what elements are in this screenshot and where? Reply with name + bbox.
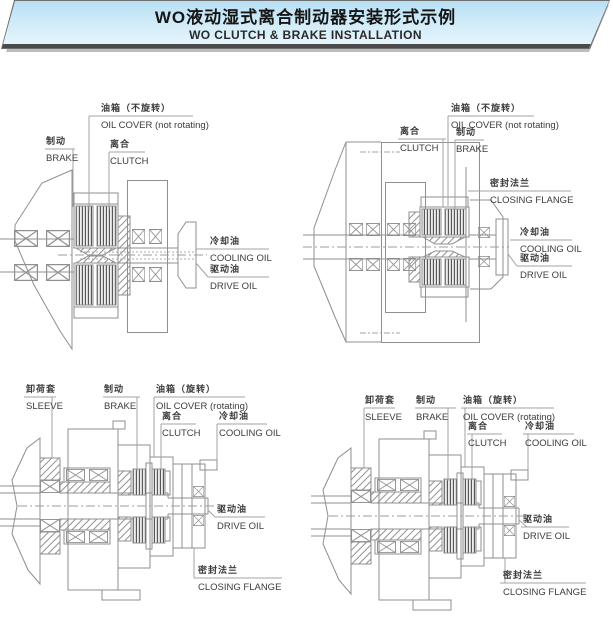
fig2-label-drive-oil: 驱动油 DRIVE OIL: [520, 253, 567, 281]
piston-bottom: [409, 257, 420, 282]
fig2-label-clutch: 离合 CLUTCH: [400, 126, 439, 154]
fig4-label-drive-oil: 驱动油 DRIVE OIL: [523, 514, 570, 542]
fig3-label-oil-cover: 油箱（旋转） OIL COVER (rotating): [156, 384, 248, 412]
fig2-label-closing-flange: 密封法兰 CLOSING FLANGE: [490, 178, 573, 206]
clutch-label-en: CLUTCH: [162, 428, 201, 439]
figure-top-right: 离合 CLUTCH 油箱（不旋转） OIL COVER (not rotatin…: [303, 88, 613, 365]
fig3-label-closing-flange: 密封法兰 CLOSING FLANGE: [198, 565, 281, 593]
clutch-label-en: CLUTCH: [400, 143, 439, 154]
cooling-oil-label-en: COOLING OIL: [210, 253, 272, 264]
drive-oil-label-en: DRIVE OIL: [217, 521, 264, 532]
clutch-label-zh: 离合: [400, 126, 439, 137]
clutch-plates: [97, 206, 116, 246]
fig3-label-clutch: 离合 CLUTCH: [162, 411, 201, 439]
closing-flange-label-zh: 密封法兰: [198, 565, 281, 576]
piston-top: [409, 212, 420, 237]
brake-label-en: BRAKE: [416, 412, 448, 423]
closing-flange-label-zh: 密封法兰: [490, 178, 573, 189]
sleeve-label-en: SLEEVE: [26, 401, 63, 412]
closing-flange-label-en: CLOSING FLANGE: [490, 195, 573, 206]
closing-flange-label-en: CLOSING FLANGE: [503, 587, 586, 598]
brake-label-en: BRAKE: [456, 144, 488, 155]
closing-flange-label-zh: 密封法兰: [503, 570, 586, 581]
brake-label-zh: 制动: [456, 127, 488, 138]
oil-cover-label-zh: 油箱（不旋转）: [451, 103, 559, 114]
clutch-label-zh: 离合: [162, 411, 201, 422]
closing-flange-label-en: CLOSING FLANGE: [198, 582, 281, 593]
oil-cover-label-zh: 油箱（旋转）: [156, 384, 248, 395]
drive-oil-label-zh: 驱动油: [210, 264, 257, 275]
drive-oil-label-zh: 驱动油: [217, 504, 264, 515]
clutch-label-zh: 离合: [110, 139, 149, 150]
cooling-oil-label-zh: 冷却油: [520, 227, 582, 238]
mechanism: [0, 421, 217, 600]
machine-wall: [314, 142, 346, 342]
drawing-geometry: [303, 142, 509, 343]
drawing-geometry: [0, 170, 207, 349]
machine-wall: [15, 170, 72, 349]
fig2-label-brake: 制动 BRAKE: [456, 127, 488, 155]
fig2-label-cooling-oil: 冷却油 COOLING OIL: [520, 227, 582, 255]
fig1-label-cooling-oil: 冷却油 COOLING OIL: [210, 236, 272, 264]
brake-label-en: BRAKE: [46, 153, 78, 164]
figure-bottom-left: 卸荷套 SLEEVE 制动 BRAKE 油箱（旋转） OIL COVER (ro…: [0, 372, 310, 634]
brake-label-zh: 制动: [46, 136, 78, 147]
fig4-label-closing-flange: 密封法兰 CLOSING FLANGE: [503, 570, 586, 598]
fig1-label-drive-oil: 驱动油 DRIVE OIL: [210, 264, 257, 292]
clutch-label-en: CLUTCH: [468, 438, 507, 449]
page-title-en: WO CLUTCH & BRAKE INSTALLATION: [189, 28, 422, 42]
fig3-label-brake: 制动 BRAKE: [104, 384, 136, 412]
drive-oil-label-en: DRIVE OIL: [520, 270, 567, 281]
clutch-label-zh: 离合: [468, 421, 507, 432]
cooling-oil-label-zh: 冷却油: [525, 421, 587, 432]
oil-cover-label-zh: 油箱（旋转）: [463, 395, 555, 406]
drive-oil-label-zh: 驱动油: [520, 253, 567, 264]
brake-label-zh: 制动: [416, 395, 448, 406]
fig4-label-cooling-oil: 冷却油 COOLING OIL: [525, 421, 587, 449]
fig4-label-clutch: 离合 CLUTCH: [468, 421, 507, 449]
oil-cover-label-en: OIL COVER (not rotating): [101, 120, 209, 131]
fig3-label-cooling-oil: 冷却油 COOLING OIL: [219, 411, 281, 439]
page-title-zh: WO液动湿式离合制动器安装形式示例: [155, 8, 456, 28]
title-banner: WO液动湿式离合制动器安装形式示例 WO CLUTCH & BRAKE INST…: [0, 0, 613, 56]
page: { "header": { "title_zh": "WO液动湿式离合制动器安装…: [0, 0, 613, 634]
oil-cover-label-zh: 油箱（不旋转）: [101, 103, 209, 114]
fig4-label-brake: 制动 BRAKE: [416, 395, 448, 423]
sleeve-label-en: SLEEVE: [365, 412, 402, 423]
fig3-label-drive-oil: 驱动油 DRIVE OIL: [217, 504, 264, 532]
bell-cover: [470, 200, 503, 289]
clutch-plates: [422, 209, 441, 235]
clutch-label-en: CLUTCH: [110, 156, 149, 167]
drive-oil-label-zh: 驱动油: [523, 514, 570, 525]
sleeve-label-zh: 卸荷套: [365, 395, 402, 406]
oil-cover-housing: [128, 181, 168, 333]
cooling-oil-label-en: COOLING OIL: [525, 438, 587, 449]
drive-oil-label-en: DRIVE OIL: [523, 531, 570, 542]
cooling-oil-label-zh: 冷却油: [210, 236, 272, 247]
brake-label-en: BRAKE: [104, 401, 136, 412]
cooling-oil-label-en: COOLING OIL: [219, 428, 281, 439]
fig1-label-oil-cover: 油箱（不旋转） OIL COVER (not rotating): [101, 103, 209, 131]
fig4-label-sleeve: 卸荷套 SLEEVE: [365, 395, 402, 423]
fig1-label-clutch: 离合 CLUTCH: [110, 139, 149, 167]
drive-oil-label-en: DRIVE OIL: [210, 281, 257, 292]
mechanism: [311, 431, 528, 610]
title-banner-face: WO液动湿式离合制动器安装形式示例 WO CLUTCH & BRAKE INST…: [2, 1, 609, 48]
figure-top-left: 制动 BRAKE 油箱（不旋转） OIL COVER (not rotating…: [0, 88, 306, 365]
fig4-label-oil-cover: 油箱（旋转） OIL COVER (rotating): [463, 395, 555, 423]
cooling-oil-label-zh: 冷却油: [219, 411, 281, 422]
brake-label-zh: 制动: [104, 384, 136, 395]
fig1-label-brake: 制动 BRAKE: [46, 136, 78, 164]
fig3-label-sleeve: 卸荷套 SLEEVE: [26, 384, 63, 412]
sleeve-label-zh: 卸荷套: [26, 384, 63, 395]
figure-bottom-right: 卸荷套 SLEEVE 制动 BRAKE 油箱（旋转） OIL COVER (ro…: [303, 372, 613, 634]
brake-plates: [76, 206, 93, 246]
brake-plates: [445, 209, 466, 235]
